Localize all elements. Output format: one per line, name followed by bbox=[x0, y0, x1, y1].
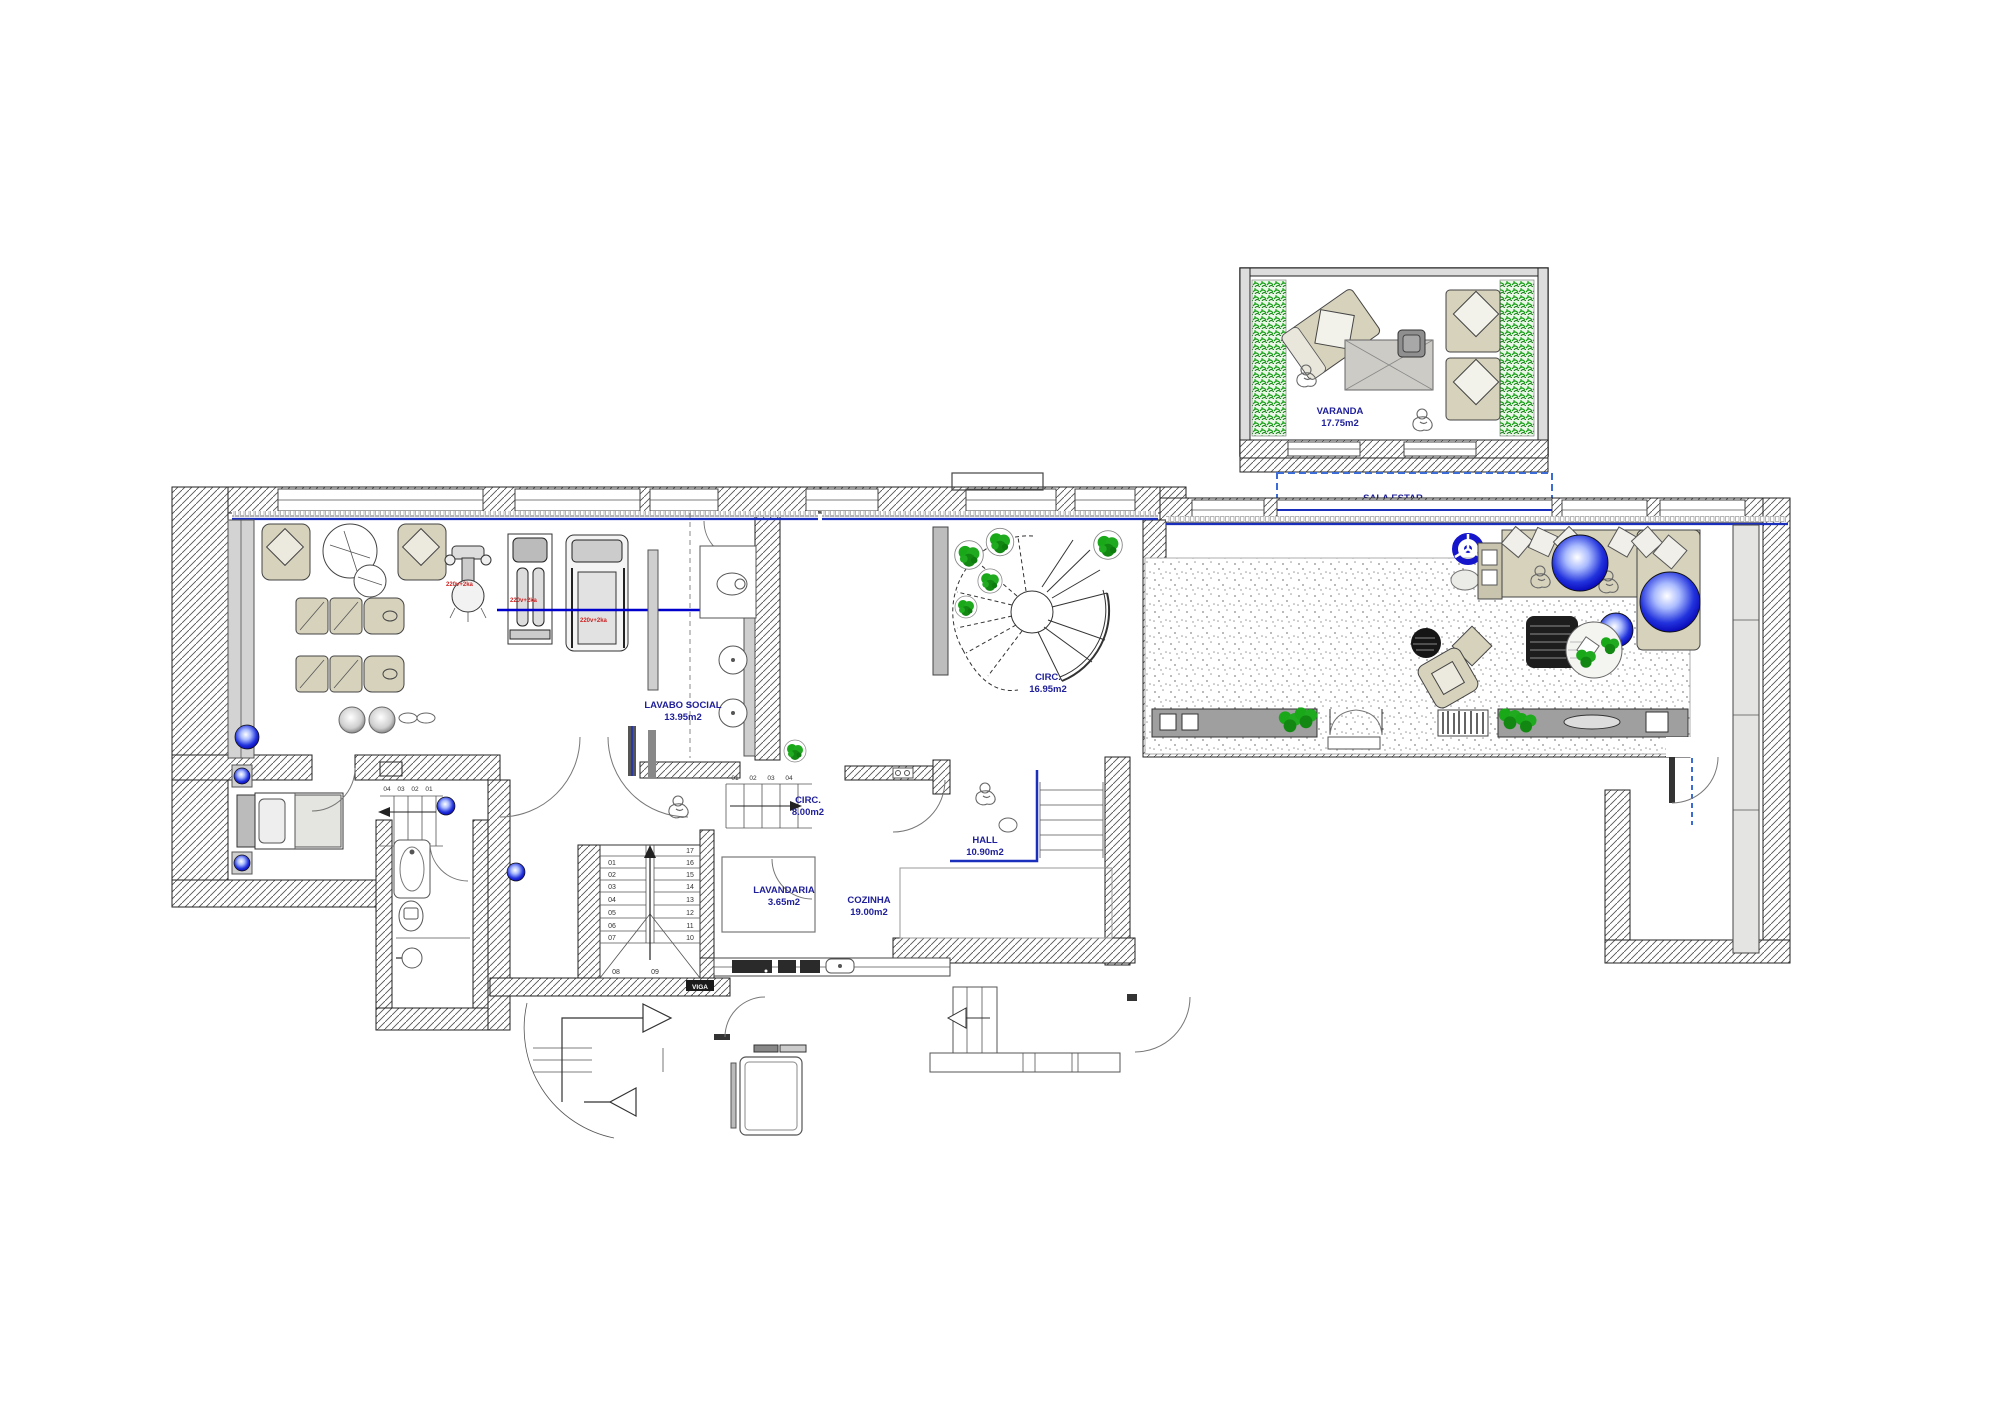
door-jamb bbox=[648, 730, 656, 778]
door-swing bbox=[1135, 997, 1190, 1052]
partition bbox=[648, 550, 658, 690]
tread-number: 04 bbox=[608, 897, 616, 904]
appliance bbox=[778, 960, 796, 973]
treadmill bbox=[566, 535, 628, 651]
tread-number: 06 bbox=[608, 923, 616, 930]
beam-tag: VIGA bbox=[686, 980, 714, 991]
entry-porch bbox=[524, 997, 806, 1138]
room-label-circ-stair: CIRC. bbox=[1035, 672, 1061, 683]
step-platform bbox=[930, 1053, 1120, 1072]
electrical-note: 220v+2ka bbox=[510, 598, 538, 604]
terrace-varanda: VARANDA 17.75m2 bbox=[1240, 268, 1548, 458]
tread-number: 07 bbox=[608, 935, 616, 942]
massage-table bbox=[296, 598, 404, 634]
path-arrow-down bbox=[610, 1088, 636, 1116]
blue-sphere-marker bbox=[234, 768, 250, 784]
blue-sphere-marker bbox=[1552, 535, 1608, 591]
blue-sphere-marker bbox=[235, 725, 259, 749]
armchair bbox=[1446, 290, 1500, 352]
step-number: 02 bbox=[411, 786, 419, 793]
tread-number: 03 bbox=[608, 884, 616, 891]
tread-number: 11 bbox=[686, 923, 693, 930]
massage-table bbox=[296, 656, 404, 692]
dark-pouf bbox=[1411, 628, 1441, 658]
tread-number: 10 bbox=[686, 935, 694, 942]
stool bbox=[1451, 570, 1479, 590]
armchair bbox=[398, 524, 446, 580]
insulation-band bbox=[1166, 516, 1786, 522]
floor-plan-drawing: VARANDA 17.75m2 SALA ESTAR 72.85m2 bbox=[0, 0, 2000, 1414]
door-swing bbox=[430, 843, 468, 881]
room-label-cozinha: COZINHA bbox=[847, 895, 890, 906]
bookshelf bbox=[1438, 710, 1488, 736]
sink bbox=[402, 948, 422, 968]
room-label-circ-hall: CIRC. bbox=[795, 795, 821, 806]
tread-number: 01 bbox=[608, 860, 616, 867]
plant-icon bbox=[986, 528, 1014, 556]
hall-steps bbox=[1040, 782, 1103, 858]
main-staircase: 01 02 03 04 05 06 07 08 09 10 11 12 13 1… bbox=[600, 845, 700, 978]
step-number: 04 bbox=[785, 775, 793, 782]
blue-sphere-marker bbox=[507, 863, 525, 881]
appliance bbox=[800, 960, 820, 973]
room-area-cozinha: 19.00m2 bbox=[850, 907, 888, 918]
terrace-bottom-wall bbox=[1240, 440, 1548, 458]
plant-icon bbox=[1094, 531, 1123, 560]
svg-text:VIGA: VIGA bbox=[692, 984, 708, 991]
tread-number: 09 bbox=[651, 969, 659, 976]
floor-plan-page: VARANDA 17.75m2 SALA ESTAR 72.85m2 bbox=[0, 0, 2000, 1414]
tread-number: 15 bbox=[686, 872, 694, 879]
blue-sphere-marker bbox=[437, 797, 455, 815]
lavabo-social: LAVABO SOCIAL 13.95m2 bbox=[644, 513, 756, 758]
toilet bbox=[717, 573, 747, 595]
side-table bbox=[1566, 622, 1622, 678]
plant-icon bbox=[955, 596, 977, 618]
door-swing bbox=[1672, 757, 1718, 803]
room-label-lavabo: LAVABO SOCIAL bbox=[644, 700, 721, 711]
laundry: LAVANDARIA 3.65m2 bbox=[722, 857, 815, 932]
bathtub bbox=[394, 840, 430, 898]
person-sketch bbox=[669, 796, 688, 818]
gym-machine bbox=[508, 534, 552, 644]
tray bbox=[417, 713, 435, 723]
tread-number: 16 bbox=[686, 860, 694, 867]
tread-number: 05 bbox=[608, 910, 616, 917]
door-leaf bbox=[714, 1034, 730, 1040]
platter bbox=[1564, 715, 1620, 729]
person-sketch bbox=[976, 783, 995, 805]
door-opening bbox=[1666, 737, 1702, 757]
partition bbox=[933, 527, 948, 675]
windows-central-wing bbox=[806, 473, 1135, 511]
electrical-note: 220v+2ka bbox=[580, 618, 608, 624]
room-label-varanda: VARANDA bbox=[1317, 406, 1364, 417]
spiral-stair-area: CIRC. 16.95m2 bbox=[933, 527, 1122, 695]
room-area-circ-hall: 8.00m2 bbox=[792, 807, 824, 818]
exterior-steps bbox=[930, 987, 1190, 1072]
tread-number: 08 bbox=[612, 969, 620, 976]
step-number: 03 bbox=[767, 775, 775, 782]
exercise-ball bbox=[369, 707, 395, 733]
room-area-lavandaria: 3.65m2 bbox=[768, 897, 800, 908]
insulation-band bbox=[822, 511, 1158, 517]
planter-strip bbox=[1252, 280, 1286, 436]
step-number: 01 bbox=[731, 775, 739, 782]
cabinet-sketch bbox=[731, 1045, 806, 1135]
lower-hall-outline bbox=[900, 868, 1112, 938]
step-number: 02 bbox=[749, 775, 757, 782]
tread-number: 02 bbox=[608, 872, 616, 879]
tray bbox=[399, 713, 417, 723]
blue-sphere-marker bbox=[1640, 572, 1700, 632]
electrical-note: 220v+2ka bbox=[446, 582, 474, 588]
plant-icon bbox=[978, 569, 1002, 593]
hall: HALL 10.90m2 bbox=[900, 770, 1112, 938]
room-area-hall: 10.90m2 bbox=[966, 847, 1004, 858]
door-leaf bbox=[1127, 994, 1137, 1001]
room-label-lavandaria: LAVANDARIA bbox=[753, 885, 815, 896]
wall bbox=[1240, 458, 1548, 472]
blue-sphere-marker bbox=[234, 855, 250, 871]
bed bbox=[237, 793, 343, 849]
object-sketch bbox=[999, 818, 1017, 832]
step-number: 04 bbox=[383, 786, 391, 793]
door-leaf bbox=[1669, 757, 1675, 803]
door-swing bbox=[500, 737, 580, 817]
tread-number: 13 bbox=[686, 897, 694, 904]
tread-number: 17 bbox=[686, 848, 694, 855]
armchair bbox=[1446, 358, 1500, 420]
tread-number: 14 bbox=[686, 884, 694, 891]
bathroom bbox=[394, 840, 470, 968]
plant-icon bbox=[955, 541, 984, 570]
room-area-circ-stair: 16.95m2 bbox=[1029, 684, 1067, 695]
room-label-hall: HALL bbox=[972, 835, 998, 846]
plant-icon bbox=[784, 740, 806, 762]
armchair bbox=[262, 524, 310, 580]
insulation-band bbox=[232, 511, 818, 517]
vanity-counter bbox=[744, 618, 755, 756]
step-number: 01 bbox=[425, 786, 433, 793]
room-area-varanda: 17.75m2 bbox=[1321, 418, 1359, 429]
planter-strip bbox=[1500, 280, 1534, 436]
tall-cabinet bbox=[1733, 525, 1759, 953]
door-swing bbox=[725, 997, 765, 1037]
room-area-lavabo: 13.95m2 bbox=[664, 712, 702, 723]
exercise-ball bbox=[339, 707, 365, 733]
step-number: 03 bbox=[397, 786, 405, 793]
tread-number: 12 bbox=[686, 910, 694, 917]
